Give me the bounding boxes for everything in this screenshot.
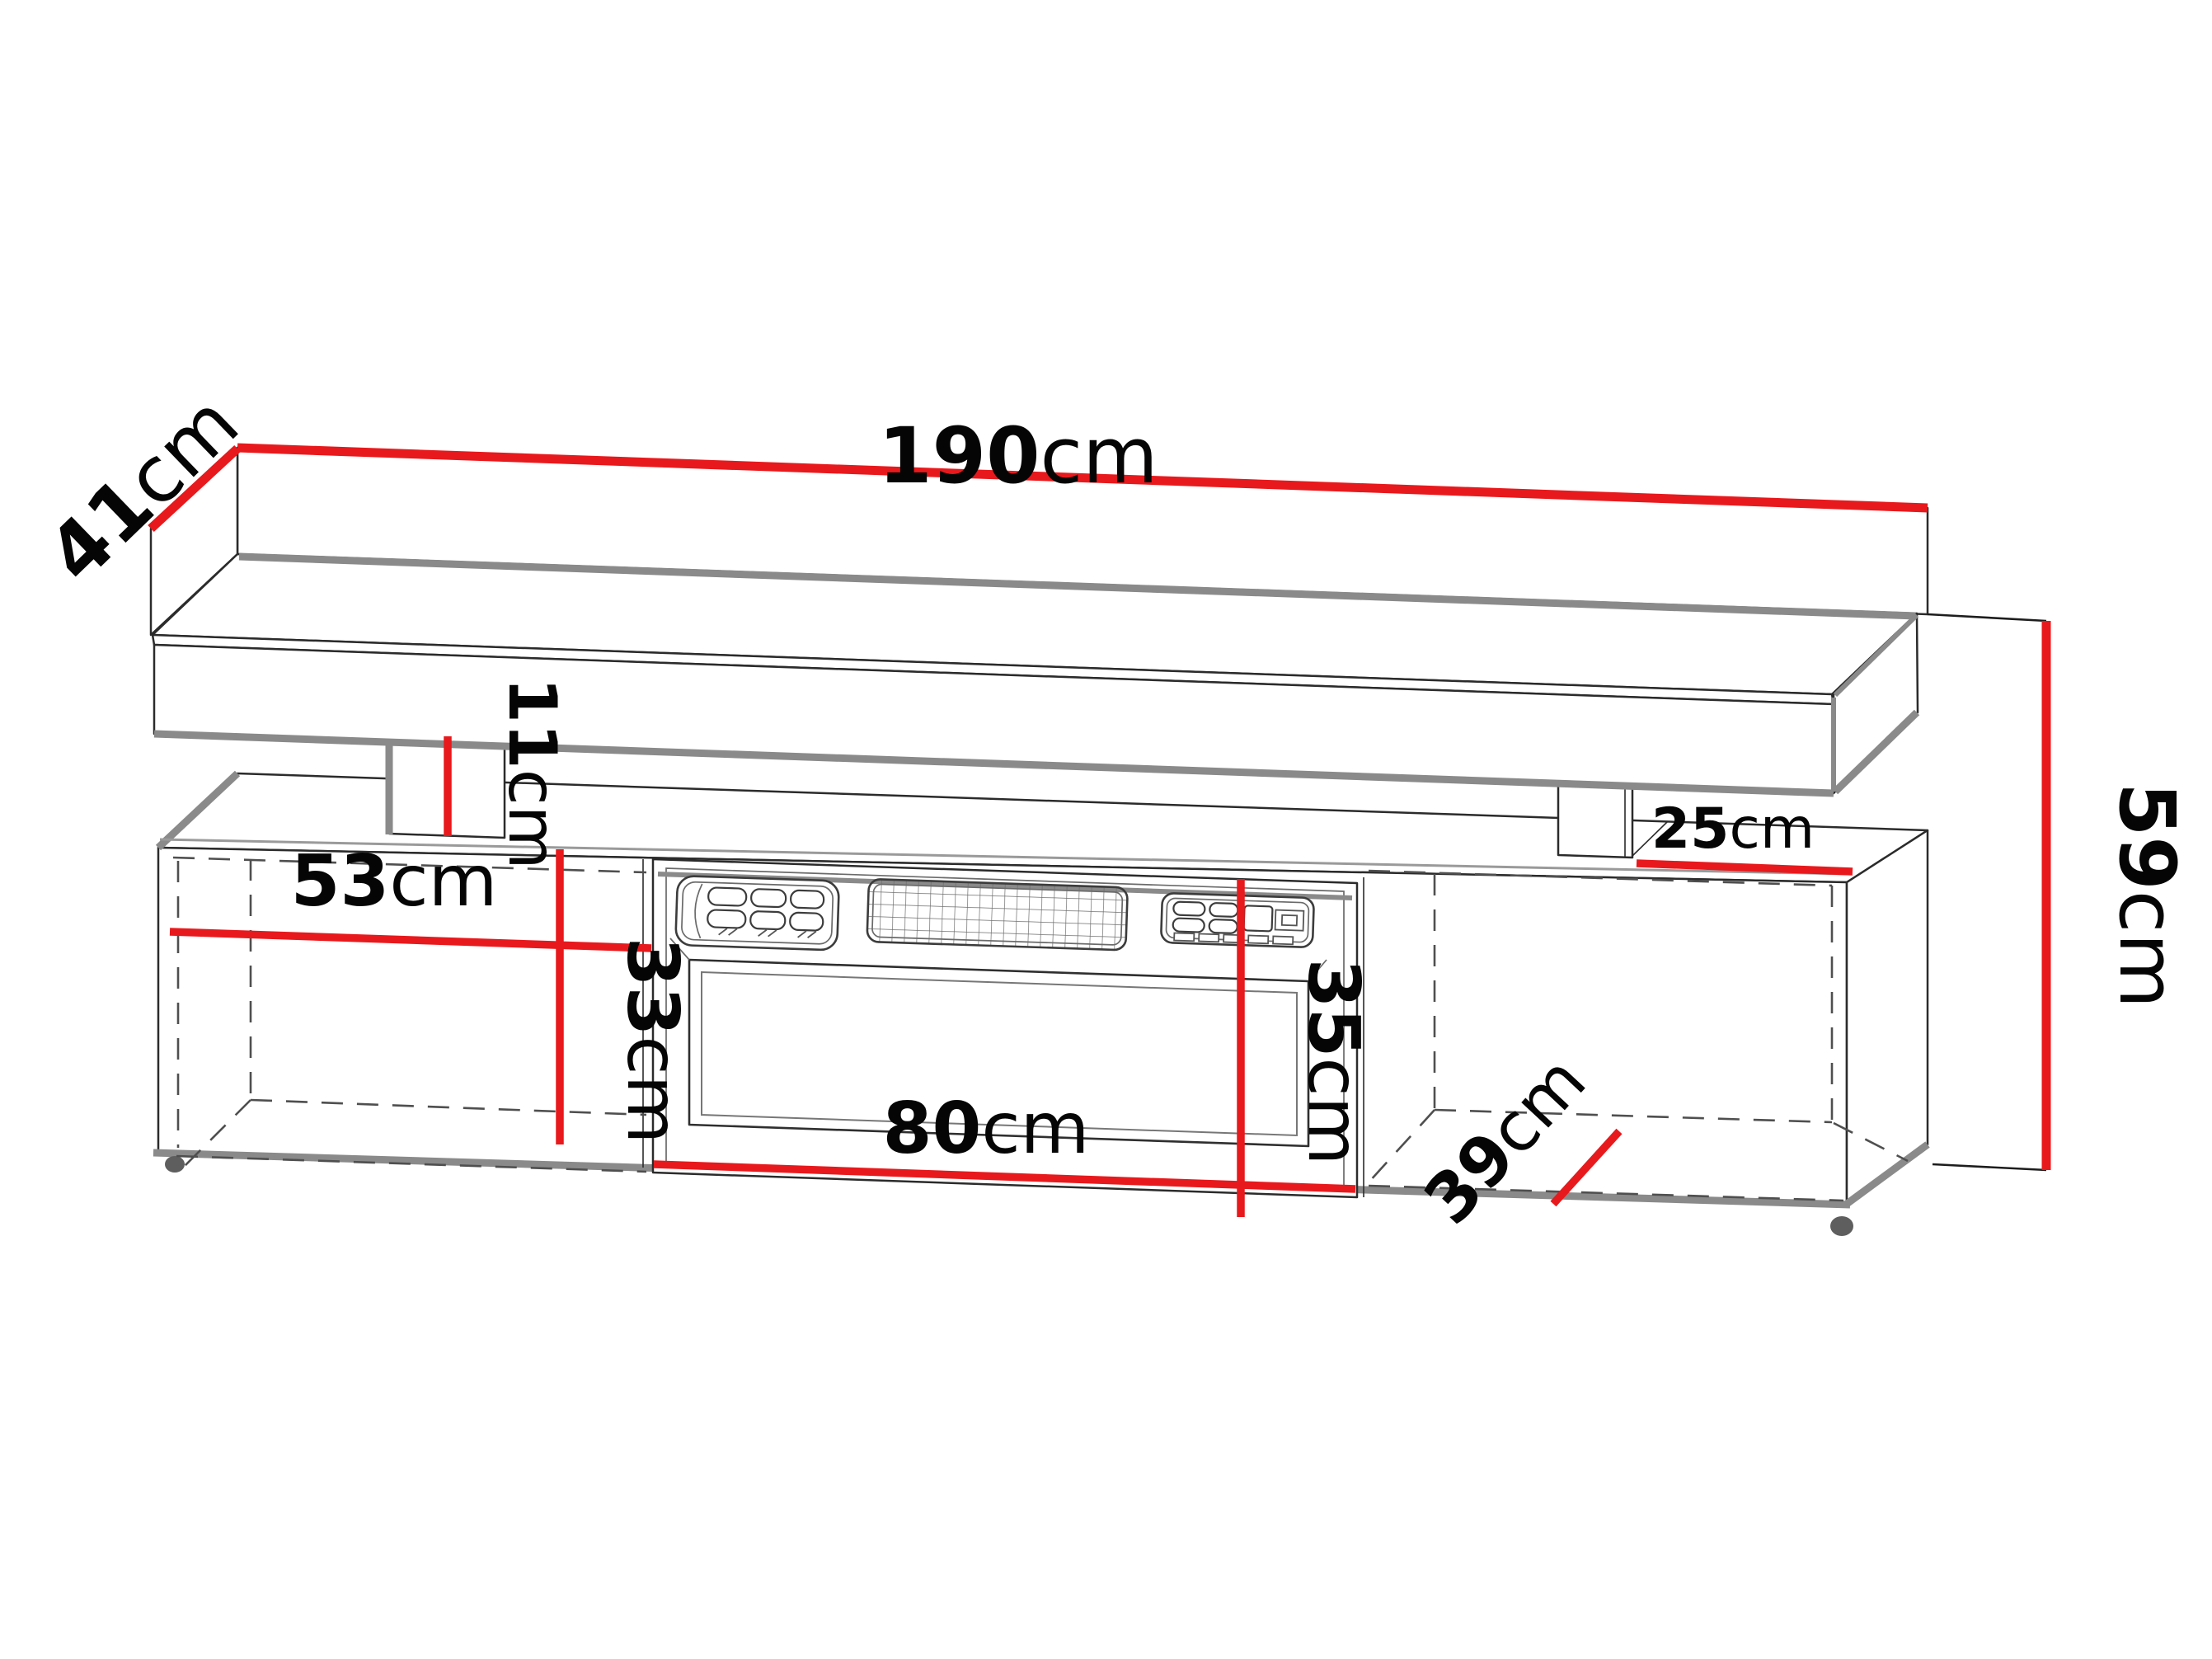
label-fireplace-height: 35cm: [1292, 959, 1374, 1166]
dimension-diagram: 190cm 41cm 11cm 59cm 53cm 33cm 80cm 35cm…: [0, 0, 2212, 1659]
cabinet-right-side: [1847, 830, 1928, 1204]
center-mesh-grille-icon: [866, 879, 1127, 950]
label-gap-height: 11cm: [494, 677, 571, 869]
label-fireplace-width: 80cm: [883, 1088, 1090, 1170]
label-total-height: 59cm: [2102, 783, 2191, 1008]
right-connector-panel: [1558, 778, 1632, 858]
left-vent-grille-icon: [675, 876, 839, 950]
label-shelf-width: 190cm: [878, 411, 1158, 501]
label-left-width: 53cm: [291, 840, 498, 923]
dim-tick-bottom: [1933, 1164, 2046, 1170]
cabinet-foot-left: [165, 1156, 185, 1173]
dim-tick-top: [1928, 614, 2046, 621]
cabinet-foot-right: [1830, 1216, 1853, 1236]
diagram-canvas: 190cm 41cm 11cm 59cm 53cm 33cm 80cm 35cm…: [0, 0, 2212, 1659]
label-left-height: 33cm: [611, 938, 693, 1144]
label-right-width: 25cm: [1651, 797, 1815, 862]
